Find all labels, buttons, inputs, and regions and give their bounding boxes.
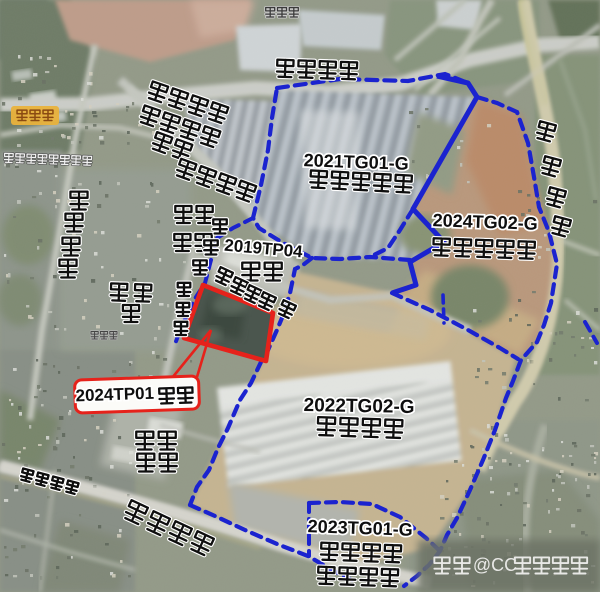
svg-text:2022TG02-G: 2022TG02-G [303, 395, 414, 418]
svg-text:@CC: @CC [473, 555, 517, 575]
svg-text:2024TP01: 2024TP01 [75, 384, 154, 406]
svg-text:2024TG02-G: 2024TG02-G [432, 210, 538, 234]
svg-text:2023TG01-G: 2023TG01-G [307, 516, 413, 540]
